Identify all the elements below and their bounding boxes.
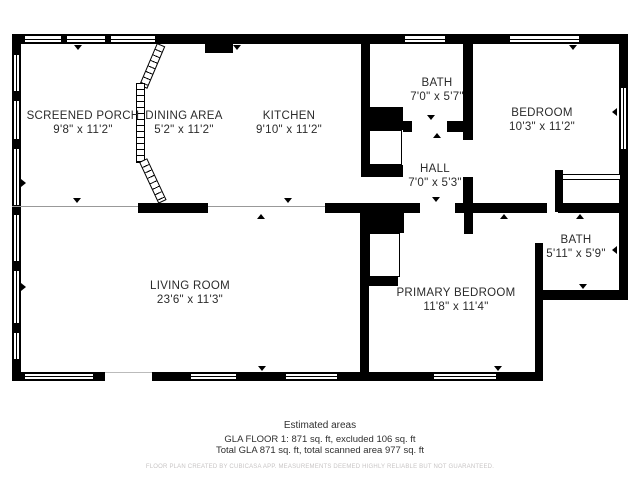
glass-wall: [139, 158, 167, 203]
room-label-dining-area: DINING AREA 5'2" x 11'2": [145, 109, 222, 137]
window: [13, 54, 20, 92]
door-tick: [494, 366, 502, 371]
room-dims: 5'11" x 5'9": [546, 247, 605, 261]
wall: [205, 44, 233, 53]
room-label-primary-bedroom: PRIMARY BEDROOM 11'8" x 11'4": [396, 286, 515, 314]
room-label-bath-1: BATH 7'0" x 5'7": [410, 76, 464, 104]
wall-opening: [105, 372, 152, 381]
door-tick: [21, 179, 26, 187]
footer-total-line: Total GLA 871 sq. ft, total scanned area…: [0, 445, 640, 456]
room-dims: 7'0" x 5'7": [410, 90, 464, 104]
room-name: DINING AREA: [145, 109, 222, 123]
room-name: PRIMARY BEDROOM: [396, 286, 515, 300]
room-label-bath-2: BATH 5'11" x 5'9": [546, 233, 605, 261]
room-name: LIVING ROOM: [150, 279, 230, 293]
room-label-kitchen: KITCHEN 9'10" x 11'2": [256, 109, 322, 137]
room-dims: 5'2" x 11'2": [145, 123, 222, 137]
room-label-living-room: LIVING ROOM 23'6" x 11'3": [150, 279, 230, 307]
room-label-bedroom: BEDROOM 10'3" x 11'2": [509, 106, 575, 134]
room-dims: 9'10" x 11'2": [256, 123, 322, 137]
window: [66, 35, 106, 43]
window: [404, 35, 446, 43]
door-tick: [73, 198, 81, 203]
room-dims: 11'8" x 11'4": [396, 300, 515, 314]
window: [13, 214, 20, 262]
room-dims: 23'6" x 11'3": [150, 293, 230, 307]
wall: [138, 203, 208, 213]
footer-title: Estimated areas: [0, 420, 640, 431]
glass-wall: [139, 43, 165, 89]
wall: [463, 44, 473, 140]
room-dims: 10'3" x 11'2": [509, 120, 575, 134]
room-name: HALL: [408, 162, 462, 176]
window: [110, 35, 156, 43]
open-boundary: [208, 206, 325, 207]
door-tick: [257, 214, 265, 219]
window: [13, 100, 20, 140]
wall: [535, 243, 543, 290]
window: [433, 373, 497, 380]
window: [24, 373, 94, 380]
bedroom-closet-doors: [563, 174, 620, 180]
door-tick: [432, 197, 440, 202]
window: [13, 148, 20, 206]
door-tick: [233, 45, 241, 50]
opening-line: [105, 372, 152, 373]
window: [13, 332, 20, 360]
footer-gla-line: GLA FLOOR 1: 871 sq. ft, excluded 106 sq…: [0, 434, 640, 445]
wall: [360, 203, 369, 373]
wall: [360, 277, 398, 286]
footer-fine-print: FLOOR PLAN CREATED BY CUBICASA APP. MEAS…: [0, 464, 640, 470]
hall-closet: [369, 130, 402, 165]
wall: [535, 290, 543, 381]
door-tick: [427, 115, 435, 120]
door-tick: [258, 366, 266, 371]
door-tick: [612, 246, 617, 254]
wall: [538, 290, 628, 300]
room-label-hall: HALL 7'0" x 5'3": [408, 162, 462, 190]
room-name: SCREENED PORCH: [27, 109, 140, 123]
door-tick: [576, 214, 584, 219]
room-dims: 7'0" x 5'3": [408, 176, 462, 190]
door-tick: [500, 214, 508, 219]
window: [285, 373, 338, 380]
window: [620, 87, 627, 150]
door-tick: [284, 198, 292, 203]
wall: [403, 121, 412, 132]
window: [509, 35, 580, 43]
wall: [558, 203, 620, 213]
window: [190, 373, 237, 380]
wall: [361, 165, 403, 177]
wall: [464, 203, 473, 234]
window: [24, 35, 62, 43]
room-name: BATH: [546, 233, 605, 247]
wall: [619, 34, 628, 296]
door-tick: [21, 283, 26, 291]
room-name: KITCHEN: [256, 109, 322, 123]
wall: [555, 170, 563, 212]
door-tick: [74, 45, 82, 50]
window: [13, 270, 20, 324]
door-tick: [612, 108, 617, 116]
estimated-areas-footer: Estimated areas GLA FLOOR 1: 871 sq. ft,…: [0, 420, 640, 470]
primary-closet: [369, 233, 400, 277]
room-label-screened-porch: SCREENED PORCH 9'8" x 11'2": [27, 109, 140, 137]
door-tick: [433, 133, 441, 138]
open-boundary: [12, 206, 138, 207]
room-dims: 9'8" x 11'2": [27, 123, 140, 137]
wall: [370, 107, 403, 130]
door-tick: [579, 284, 587, 289]
room-name: BATH: [410, 76, 464, 90]
room-name: BEDROOM: [509, 106, 575, 120]
floor-plan: SCREENED PORCH 9'8" x 11'2" DINING AREA …: [0, 0, 640, 480]
door-tick: [569, 45, 577, 50]
wall: [369, 205, 404, 233]
